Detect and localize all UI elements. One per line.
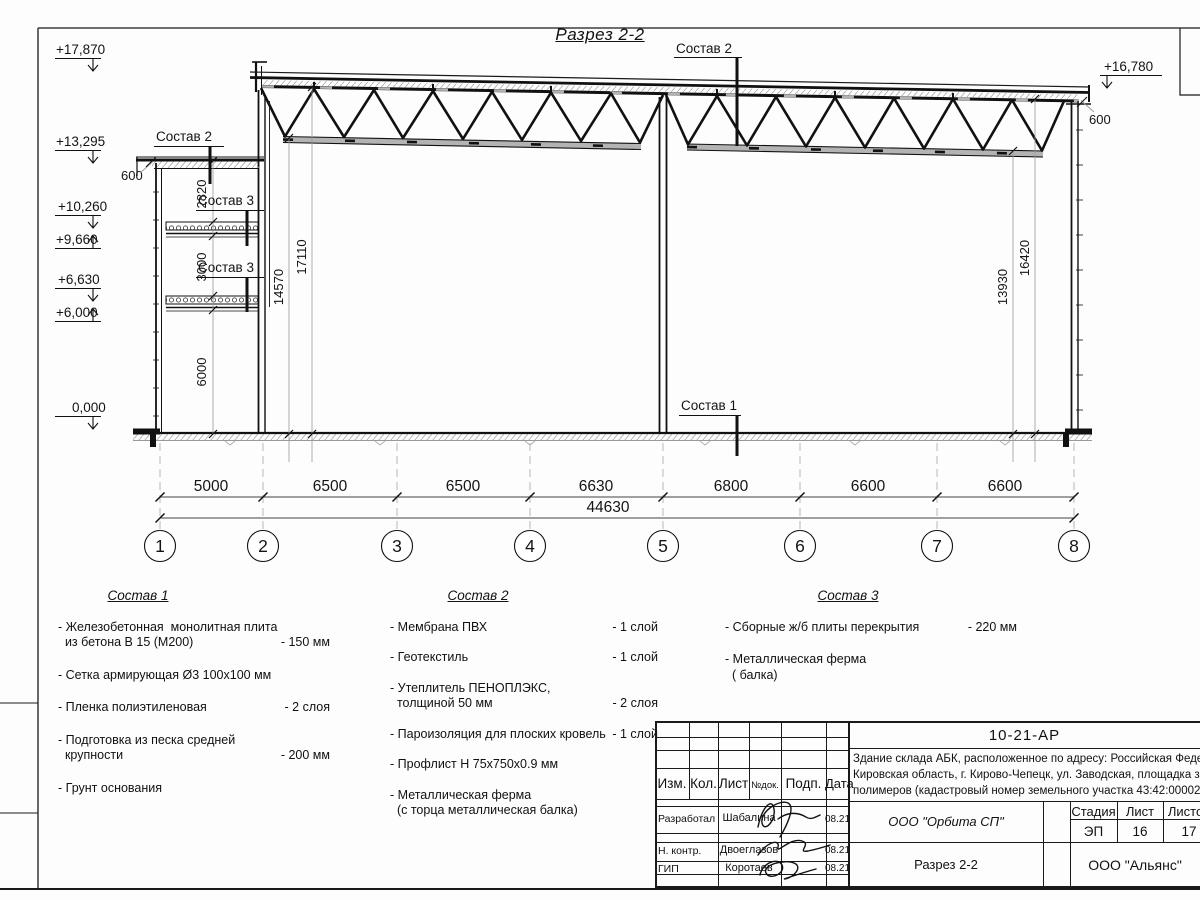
legend-item-qty: - 1 слой (612, 620, 658, 636)
sheet-drawing-name: Разрез 2-2 (849, 857, 1043, 872)
dimension-lines: 5000 6500 6500 6630 6800 6600 6600 44630 (156, 478, 1079, 523)
dim-6500a: 6500 (313, 478, 348, 495)
legend-item: - Мембрана ПВХ - 1 слой (390, 620, 658, 636)
sheets-value: 17 (1163, 824, 1200, 839)
dim-6000: 6000 (194, 358, 209, 387)
legend-item-name: - Пленка полиэтиленовая (58, 700, 207, 716)
callout-sostav3-upper: Состав 3 (198, 193, 254, 208)
legend-sostav2: Состав 2 - Мембрана ПВХ - 1 слой - Геоте… (390, 588, 658, 836)
drawing-title: Разрез 2-2 (505, 25, 695, 45)
bubble-2: 2 (258, 536, 268, 556)
bubble-5: 5 (658, 536, 668, 556)
stage-label: Стадия (1070, 804, 1117, 819)
col-list: Лист (718, 776, 749, 791)
legend-item: - Сборные ж/б плиты перекрытия - 220 мм (725, 620, 1017, 636)
legend-item: - Пароизоляция для плоских кровель - 1 с… (390, 727, 658, 743)
dim-16420: 16420 (1017, 240, 1032, 276)
legend-sostav3-title: Состав 3 (725, 588, 971, 604)
bubble-4: 4 (525, 536, 535, 556)
col-data: Дата (825, 776, 849, 791)
bubble-8: 8 (1069, 536, 1079, 556)
legend-sostav1-title: Состав 1 (58, 588, 218, 604)
callout-sostav1: Состав 1 (681, 398, 737, 413)
dim-6600b: 6600 (988, 478, 1023, 495)
overhang-left-label: 600 (121, 168, 143, 183)
legend-sostav3: Состав 3 - Сборные ж/б плиты перекрытия … (725, 588, 1017, 700)
legend-item: - Геотекстиль - 1 слой (390, 650, 658, 666)
elev-6000: +6,000 (56, 305, 98, 320)
legend-item-qty: - 2 слоя (613, 696, 658, 712)
legend-item: - Металлическая ферма (с торца металличе… (390, 788, 658, 819)
callout-sostav2-left: Состав 2 (156, 129, 212, 144)
ground-floor (133, 429, 1092, 448)
dim-6800: 6800 (714, 478, 749, 495)
legend-item-qty: - 150 мм (281, 635, 330, 651)
legend-item-name: - Сетка армирующая Ø3 100х100 мм (58, 668, 271, 684)
row-ncontrol-role: Н. контр. (658, 845, 701, 857)
elev-13295: +13,295 (56, 134, 105, 149)
elev-0000: 0,000 (72, 400, 106, 415)
bubble-1: 1 (155, 536, 165, 556)
dim-total: 44630 (586, 499, 629, 516)
elev-6630: +6,630 (58, 272, 100, 287)
legend-item-name: - Мембрана ПВХ (390, 620, 487, 636)
stage-value: ЭП (1070, 824, 1117, 839)
col-podp: Подп. (781, 776, 826, 791)
elev-10260: +10,260 (58, 199, 107, 214)
legend-sostav2-title: Состав 2 (390, 588, 566, 604)
legend-item-name: - Профлист Н 75х750х0.9 мм (390, 757, 558, 773)
dim-6500b: 6500 (446, 478, 481, 495)
elev-17870: +17,870 (56, 42, 105, 57)
elev-16780: +16,780 (1104, 59, 1153, 74)
legend-item: - Утеплитель ПЕНОПЛЭКС, толщиной 50 мм -… (390, 681, 658, 712)
legend-item: - Грунт основания (58, 781, 330, 797)
legend-item-name: - Пароизоляция для плоских кровель (390, 727, 606, 743)
legend-item: - Металлическая ферма ( балка) (725, 652, 1017, 683)
legend-item: - Профлист Н 75х750х0.9 мм (390, 757, 658, 773)
legend-item-name: - Железобетонная монолитная плита из бет… (58, 620, 277, 651)
legend-item: - Железобетонная монолитная плита из бет… (58, 620, 330, 651)
callout-sostav3-lower: Состав 3 (198, 260, 254, 275)
grid-bubbles: 1 2 3 4 5 6 7 8 (145, 531, 1090, 562)
doc-number: 10-21-АР (849, 727, 1200, 744)
col-ndok: №док. (749, 780, 781, 791)
col-izm: Изм. (655, 776, 689, 791)
legend-item-name: - Грунт основания (58, 781, 162, 797)
legend-item-name: - Утеплитель ПЕНОПЛЭКС, толщиной 50 мм (390, 681, 550, 712)
signatures-ncontrol-gip (750, 833, 840, 885)
row-developer-role: Разработал (658, 813, 715, 825)
dim-14570: 14570 (271, 269, 286, 305)
org-name: ООО "Орбита СП" (849, 814, 1043, 829)
dim-6600a: 6600 (851, 478, 886, 495)
legend-item-name: - Сборные ж/б плиты перекрытия (725, 620, 919, 636)
legend-item-qty: - 1 слой (612, 727, 658, 743)
elev-9660: +9,660 (56, 232, 98, 247)
dim-6630: 6630 (579, 478, 614, 495)
col-kol: Кол. (689, 776, 718, 791)
legend-item-qty: - 200 мм (281, 748, 330, 764)
dim-5000: 5000 (194, 478, 229, 495)
project-description: Здание склада АБК, расположенное по адре… (853, 752, 1200, 799)
dim-17110: 17110 (294, 239, 309, 274)
sheet-value: 16 (1117, 824, 1163, 839)
roof-assembly (250, 62, 1091, 104)
legend-item-qty: - 1 слой (612, 650, 658, 666)
overhang-right-label: 600 (1089, 112, 1111, 127)
company-name: ООО "Альянс" (1070, 857, 1200, 873)
legend-item-name: - Подготовка из песка средней крупности (58, 733, 235, 764)
callouts: Состав 2 Состав 2 Состав 3 Состав 3 Сост… (154, 41, 742, 456)
legend-item-qty: - 220 мм (968, 620, 1017, 636)
legend-item: - Сетка армирующая Ø3 100х100 мм (58, 668, 330, 684)
sheets-label: Листов (1163, 804, 1200, 819)
row-gip-role: ГИП (658, 863, 679, 875)
legend-sostav1: Состав 1 - Железобетонная монолитная пли… (58, 588, 330, 813)
bubble-3: 3 (392, 536, 402, 556)
legend-item: - Подготовка из песка средней крупности … (58, 733, 330, 764)
bubble-6: 6 (795, 536, 805, 556)
bubble-7: 7 (932, 536, 942, 556)
legend-item-name: - Геотекстиль (390, 650, 468, 666)
legend-item: - Пленка полиэтиленовая - 2 слоя (58, 700, 330, 716)
grid-lines (160, 443, 1074, 529)
drawing-sheet: { "drawing": { "title": "Разрез 2-2", "e… (0, 0, 1200, 900)
legend-item-qty: - 2 слоя (285, 700, 330, 716)
sheet-label: Лист (1117, 804, 1163, 819)
legend-item-name: - Металлическая ферма (с торца металличе… (390, 788, 578, 819)
dim-13930: 13930 (995, 269, 1010, 305)
legend-item-name: - Металлическая ферма ( балка) (725, 652, 866, 683)
